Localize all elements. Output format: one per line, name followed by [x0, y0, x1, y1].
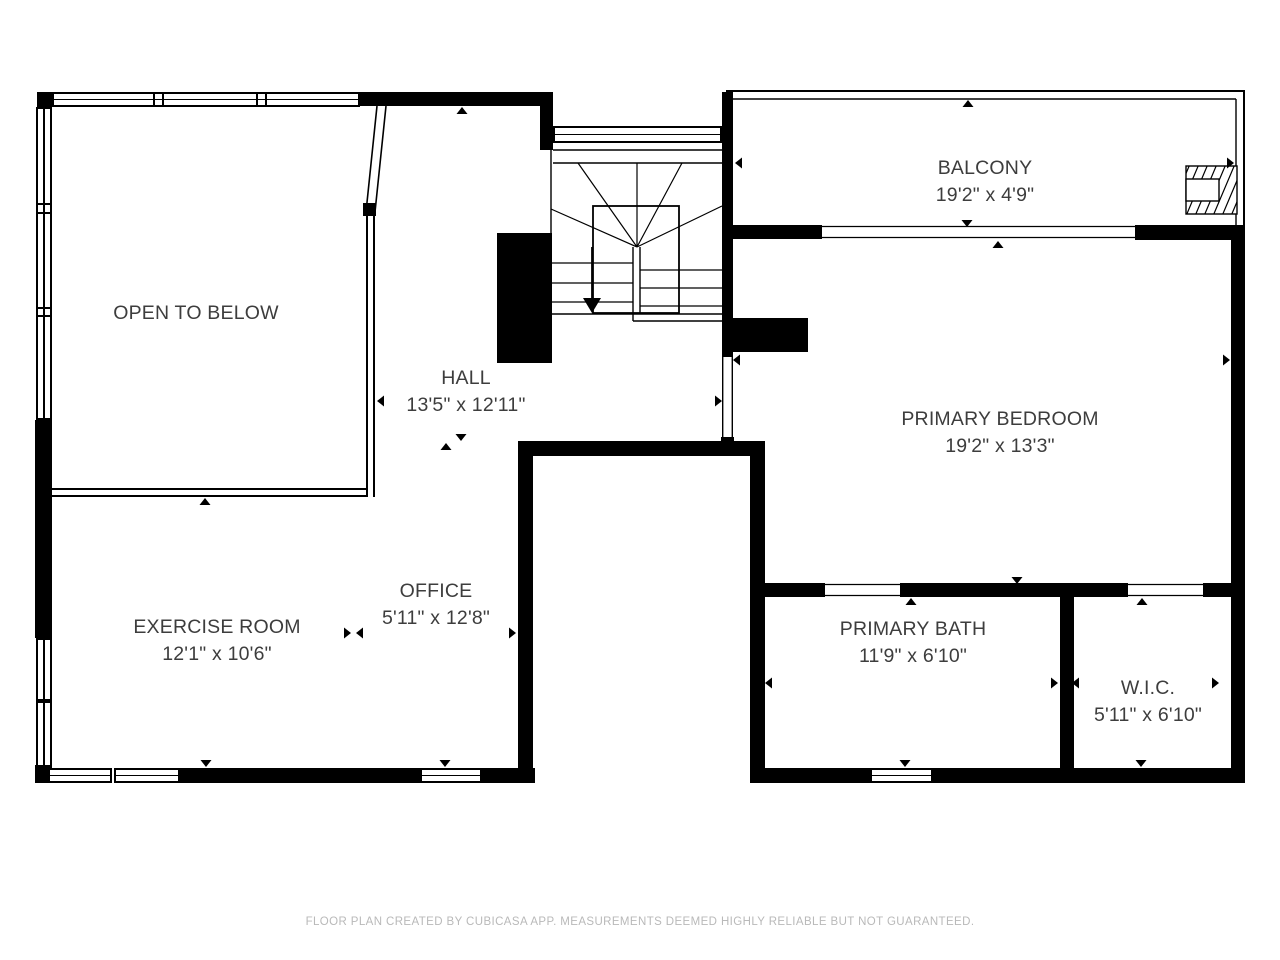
room-dimensions: 13'5" x 12'11": [346, 392, 586, 419]
footer-disclaimer: FLOOR PLAN CREATED BY CUBICASA APP. MEAS…: [0, 916, 1280, 928]
room-name: EXERCISE ROOM: [67, 614, 367, 641]
room-label-open-to-below: OPEN TO BELOW: [66, 300, 326, 327]
room-dimensions: 11'9" x 6'10": [763, 643, 1063, 670]
room-dimensions: 5'11" x 6'10": [1048, 702, 1248, 729]
staircase: [551, 143, 722, 321]
room-label-primary-bath: PRIMARY BATH 11'9" x 6'10": [763, 616, 1063, 670]
room-label-balcony: BALCONY 19'2" x 4'9": [865, 155, 1105, 209]
room-name: BALCONY: [865, 155, 1105, 182]
arrow-down-icon: [201, 220, 1147, 767]
room-name: OFFICE: [336, 578, 536, 605]
room-name: OPEN TO BELOW: [66, 300, 326, 327]
room-dimensions: 19'2" x 13'3": [850, 433, 1150, 460]
room-name: W.I.C.: [1048, 675, 1248, 702]
floor-plan-canvas: OPEN TO BELOW BALCONY 19'2" x 4'9" HALL …: [0, 0, 1280, 960]
stairs-down-arrow: [583, 247, 601, 313]
plan-linework: [0, 0, 1280, 960]
room-name: HALL: [346, 365, 586, 392]
room-label-primary-bedroom: PRIMARY BEDROOM 19'2" x 13'3": [850, 406, 1150, 460]
room-dimensions: 5'11" x 12'8": [336, 605, 536, 632]
room-dimensions: 19'2" x 4'9": [865, 182, 1105, 209]
fireplace-icon: [1168, 164, 1253, 216]
room-name: PRIMARY BATH: [763, 616, 1063, 643]
room-label-exercise-room: EXERCISE ROOM 12'1" x 10'6": [67, 614, 367, 668]
room-dimensions: 12'1" x 10'6": [67, 641, 367, 668]
room-label-hall: HALL 13'5" x 12'11": [346, 365, 586, 419]
room-label-wic: W.I.C. 5'11" x 6'10": [1048, 675, 1248, 729]
room-label-office: OFFICE 5'11" x 12'8": [336, 578, 536, 632]
room-name: PRIMARY BEDROOM: [850, 406, 1150, 433]
slanted-wall: [363, 106, 386, 216]
